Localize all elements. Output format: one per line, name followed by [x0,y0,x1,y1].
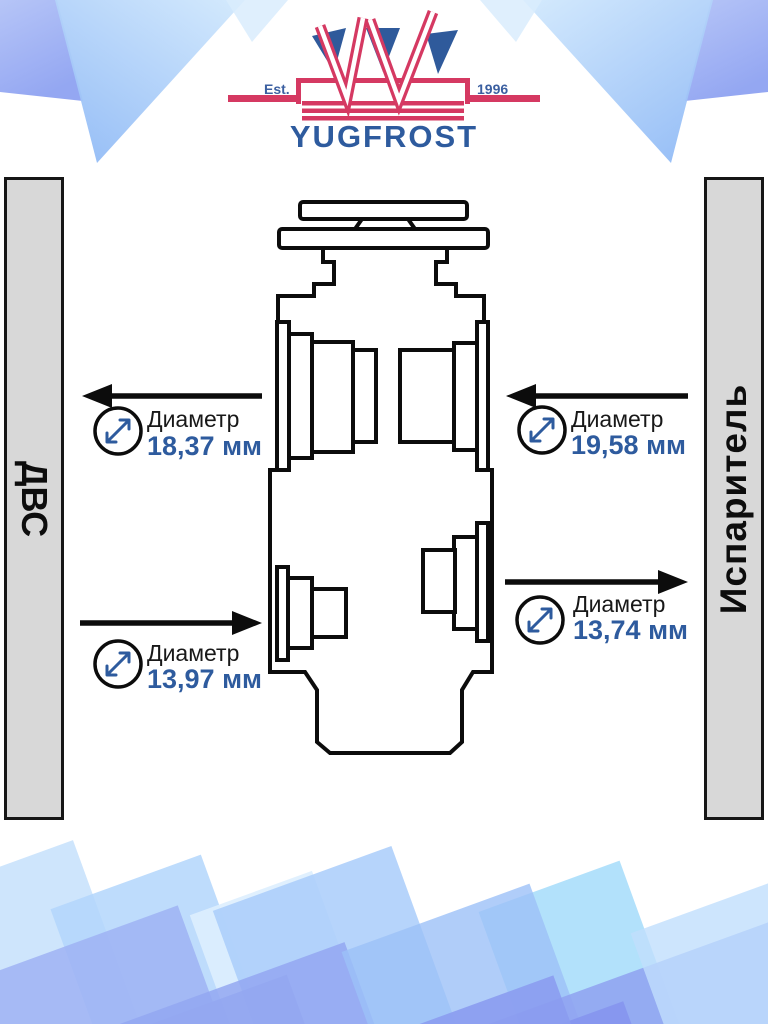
arrow-lower-left [80,611,262,635]
diameter-value-upper-left: 18,37 мм [147,431,262,462]
diameter-value-lower-right: 13,74 мм [573,615,688,646]
diameter-icon-lower-right [517,597,563,643]
valve-plate-lower [279,229,488,248]
logo-est-label: Est. [264,81,290,97]
diameter-icon-upper-right [519,407,565,453]
infographic-canvas: Est. 1996 YUGFROST ДВС Испаритель [0,0,768,1024]
brand-name: YUGFROST [290,119,478,155]
diameter-label-upper-left: Диаметр [147,406,239,433]
arrow-upper-left [82,384,262,408]
valve-body-outline [270,248,492,753]
diameter-label-lower-right: Диаметр [573,591,665,618]
diameter-icon-upper-left [95,408,141,454]
arrow-upper-right [506,384,688,408]
diameter-label-lower-left: Диаметр [147,640,239,667]
diameter-value-lower-left: 13,97 мм [147,664,262,695]
diameter-icon-lower-left [95,641,141,687]
diameter-value-upper-right: 19,58 мм [571,430,686,461]
valve-diagram [270,202,492,753]
logo-year-label: 1996 [477,81,508,97]
diameter-label-upper-right: Диаметр [571,406,663,433]
valve-plate-upper [300,202,467,219]
